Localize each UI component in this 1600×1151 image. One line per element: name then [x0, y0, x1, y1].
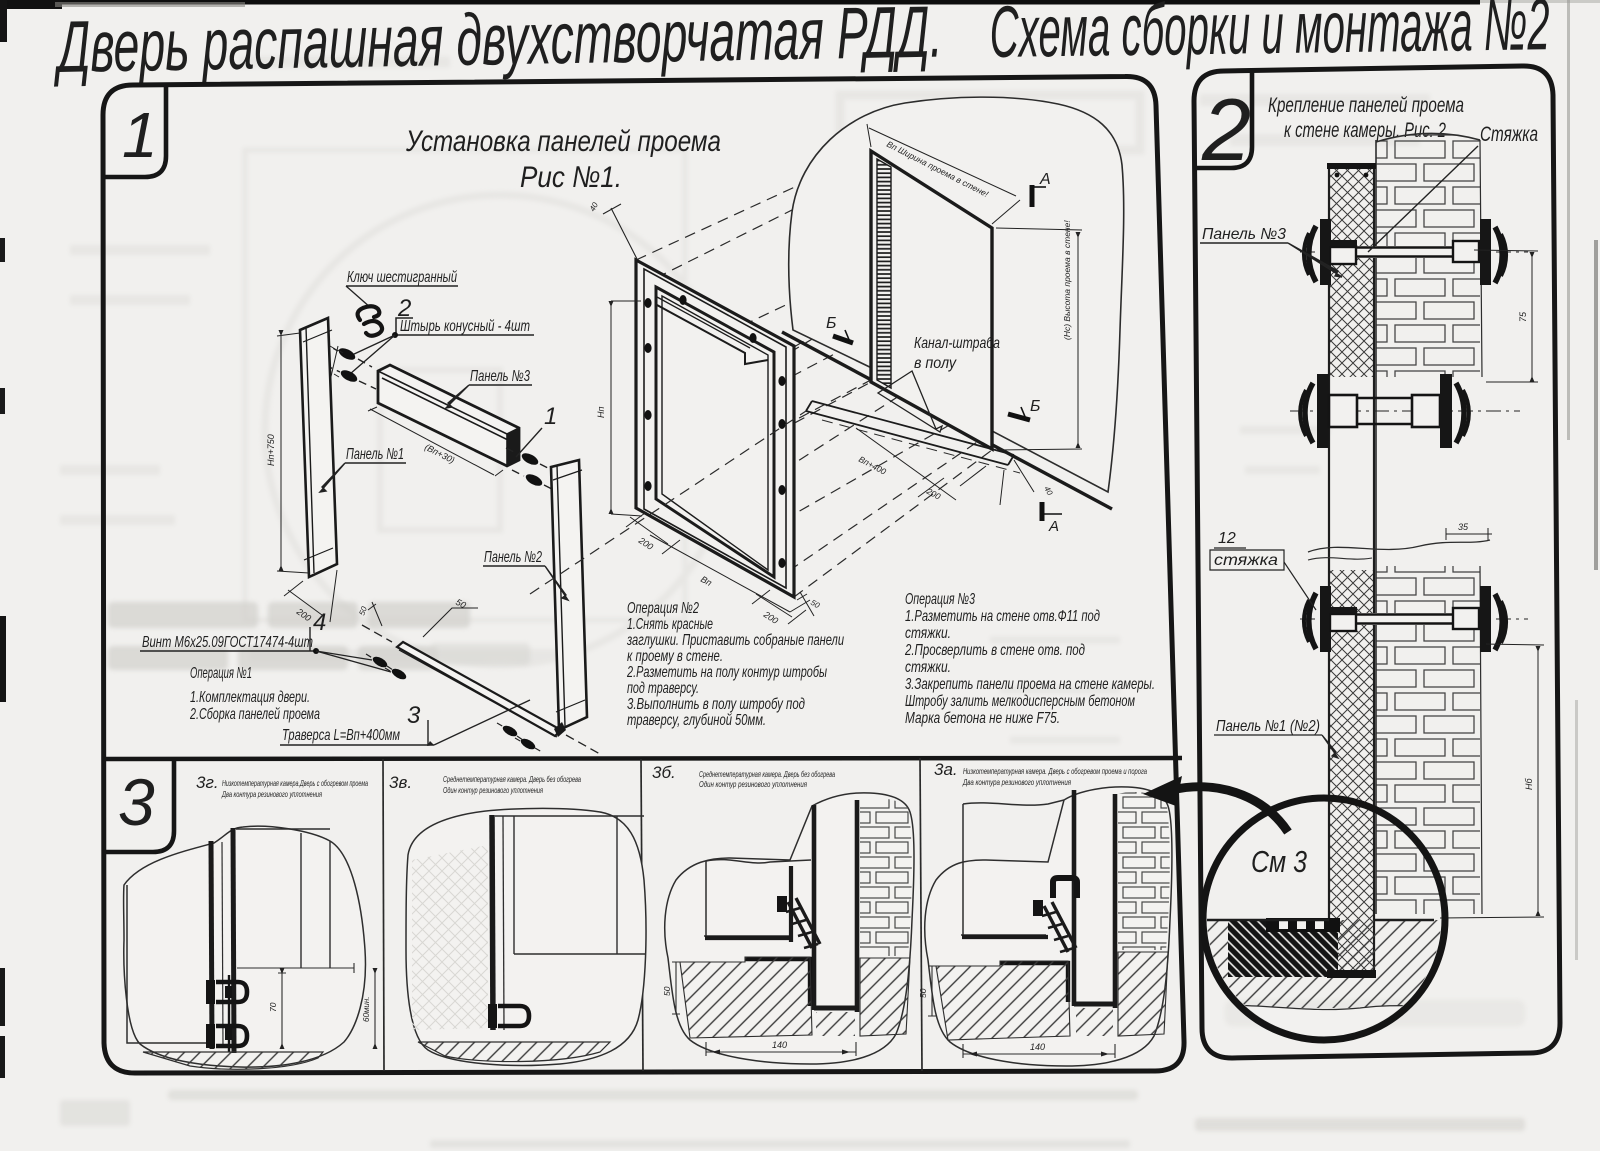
svg-text:См 3: См 3 — [1251, 844, 1307, 879]
svg-text:Стяжка: Стяжка — [1480, 123, 1538, 146]
svg-text:заглушки. Приставить собраные: заглушки. Приставить собраные панели — [626, 632, 844, 649]
svg-text:стяжки.: стяжки. — [905, 625, 951, 642]
svg-text:стяжки.: стяжки. — [905, 659, 951, 676]
svg-text:70: 70 — [268, 1002, 278, 1012]
svg-text:1: 1 — [544, 403, 557, 430]
svg-text:Канал-штраба: Канал-штраба — [914, 335, 1000, 352]
svg-text:2.Сборка панелей проема: 2.Сборка панелей проема — [189, 706, 320, 723]
svg-text:2: 2 — [1201, 80, 1251, 179]
svg-text:Штырь конусный - 4шт: Штырь конусный - 4шт — [400, 318, 530, 335]
svg-text:(Нс) Высота проема в стене!: (Нс) Высота проема в стене! — [1062, 220, 1072, 340]
svg-text:Марка бетона не ниже F75.: Марка бетона не ниже F75. — [905, 710, 1060, 727]
svg-text:Операция №3: Операция №3 — [905, 591, 975, 608]
svg-text:Схема сборки и монтажа №2: Схема сборки и монтажа №2 — [989, 0, 1550, 73]
svg-text:Панель №3: Панель №3 — [470, 368, 530, 385]
svg-text:Низкотемпературная камера.Двер: Низкотемпературная камера.Дверь с обогре… — [222, 779, 368, 788]
svg-text:Нп+750: Нп+750 — [266, 434, 276, 466]
svg-text:Один контур резинового уплотне: Один контур резинового уплотнения — [443, 786, 544, 795]
svg-text:3б.: 3б. — [652, 763, 676, 782]
svg-text:12: 12 — [1218, 530, 1236, 547]
svg-text:60мин.: 60мин. — [362, 997, 371, 1022]
svg-text:4: 4 — [313, 609, 326, 636]
svg-text:Нб: Нб — [1524, 778, 1534, 790]
svg-text:А: А — [1039, 171, 1051, 188]
svg-text:Винт М6х25.09ГОСТ17474-4шт: Винт М6х25.09ГОСТ17474-4шт — [142, 634, 313, 651]
svg-text:стяжка: стяжка — [1214, 552, 1278, 569]
svg-text:в полу: в полу — [914, 355, 957, 372]
svg-text:Среднетемпературная камера. Дв: Среднетемпературная камера. Дверь без об… — [699, 770, 835, 779]
svg-text:Панель №2: Панель №2 — [484, 549, 542, 566]
svg-text:3.Закрепить панели проема на с: 3.Закрепить панели проема на стене камер… — [905, 676, 1155, 693]
svg-text:Два контура резинового уплотне: Два контура резинового уплотнения — [221, 790, 322, 799]
svg-text:1.Комплектация двери.: 1.Комплектация двери. — [190, 689, 310, 706]
svg-text:3г.: 3г. — [196, 773, 219, 792]
svg-text:35: 35 — [1458, 522, 1469, 532]
svg-text:140: 140 — [1030, 1042, 1045, 1052]
svg-text:Панель №3: Панель №3 — [1202, 226, 1286, 243]
svg-text:Штробу залить мелкодисперсным: Штробу залить мелкодисперсным бетоном — [905, 693, 1135, 710]
svg-text:А: А — [1048, 518, 1059, 535]
svg-text:2.Просверлить в стене отв.: 2.Просверлить в стене отв. под — [904, 642, 1085, 659]
svg-text:Один контур резинового уплотне: Один контур резинового уплотнения — [699, 780, 808, 789]
svg-text:1: 1 — [122, 99, 158, 171]
svg-text:Нп: Нп — [596, 407, 606, 418]
svg-text:траверсу, глубиной 50мм.: траверсу, глубиной 50мм. — [627, 712, 766, 729]
svg-text:3в.: 3в. — [389, 773, 412, 792]
svg-text:1.Снять красные: 1.Снять красные — [627, 616, 713, 633]
svg-text:3а.: 3а. — [934, 760, 958, 779]
svg-text:Панель №1: Панель №1 — [346, 446, 404, 463]
svg-text:75: 75 — [1518, 311, 1528, 322]
svg-text:3: 3 — [118, 765, 155, 839]
svg-text:под траверсу.: под траверсу. — [627, 680, 699, 697]
svg-text:1.Разметить на стене отв.Ф11 п: 1.Разметить на стене отв.Ф11 под — [905, 608, 1100, 625]
svg-text:к проему в стене.: к проему в стене. — [627, 648, 723, 665]
svg-text:50: 50 — [662, 986, 672, 996]
svg-text:Б: Б — [826, 315, 836, 332]
svg-text:2.Разметить на полу контур штр: 2.Разметить на полу контур штробы — [626, 664, 827, 681]
svg-text:Среднетемпературная камера. Дв: Среднетемпературная камера. Дверь без об… — [443, 775, 581, 784]
svg-text:3: 3 — [407, 702, 421, 729]
svg-text:Ключ шестигранный: Ключ шестигранный — [347, 269, 457, 286]
svg-text:Установка панелей проема: Установка панелей проема — [405, 125, 721, 158]
svg-text:Траверса L=Bп+400мм: Траверса L=Bп+400мм — [282, 727, 400, 744]
svg-text:Б: Б — [1030, 398, 1040, 415]
svg-text:Низкотемпературная камера. Две: Низкотемпературная камера. Дверь с обогр… — [963, 767, 1147, 776]
svg-text:Операция №1: Операция №1 — [190, 665, 252, 682]
svg-text:Панель №1 (№2): Панель №1 (№2) — [1216, 718, 1320, 735]
svg-text:Крепление панелей проема: Крепление панелей проема — [1268, 94, 1464, 117]
svg-text:Два контура резинового уплотне: Два контура резинового уплотнения — [962, 778, 1071, 787]
svg-text:3.Выполнить в полу штробу под: 3.Выполнить в полу штробу под — [627, 696, 805, 713]
svg-text:Дверь распашная двухстворчатая: Дверь распашная двухстворчатая РДД. — [52, 0, 943, 88]
svg-text:Операция №2: Операция №2 — [627, 600, 699, 617]
svg-text:140: 140 — [772, 1040, 787, 1050]
svg-text:50: 50 — [918, 988, 928, 998]
svg-text:Рис №1.: Рис №1. — [520, 161, 622, 194]
